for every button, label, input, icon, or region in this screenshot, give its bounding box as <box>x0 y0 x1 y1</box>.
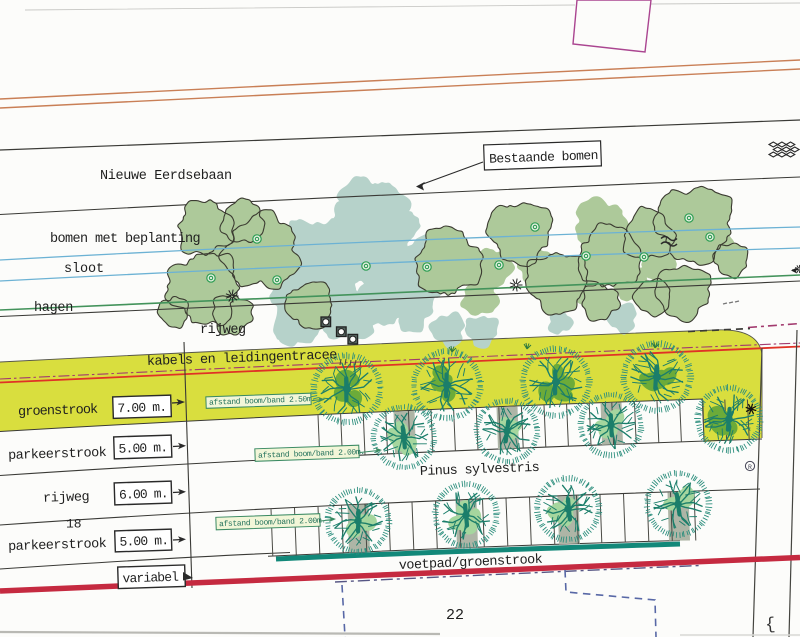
svg-text:parkeerstrook: parkeerstrook <box>8 446 107 464</box>
svg-text:R: R <box>748 464 752 471</box>
svg-text:22: 22 <box>446 607 464 624</box>
svg-text:bomen met beplanting: bomen met beplanting <box>50 232 200 247</box>
svg-text:{: { <box>765 616 777 636</box>
svg-text:hagen: hagen <box>34 301 73 316</box>
svg-text:18: 18 <box>66 517 82 532</box>
svg-text:5.00 m.: 5.00 m. <box>119 533 168 550</box>
svg-text:parkeerstrook: parkeerstrook <box>8 537 107 555</box>
svg-text:rijweg: rijweg <box>43 490 90 506</box>
svg-text:7.00 m.: 7.00 m. <box>117 400 166 417</box>
svg-text:sloot: sloot <box>64 262 104 277</box>
svg-text:groenstrook: groenstrook <box>18 403 98 421</box>
svg-text:variabel: variabel <box>122 570 179 587</box>
svg-text:rijweg: rijweg <box>200 323 246 338</box>
svg-text:5.00 m.: 5.00 m. <box>118 440 167 457</box>
svg-text:6.00 m.: 6.00 m. <box>119 486 168 503</box>
svg-text:Nieuwe Eerdsebaan: Nieuwe Eerdsebaan <box>100 169 232 184</box>
